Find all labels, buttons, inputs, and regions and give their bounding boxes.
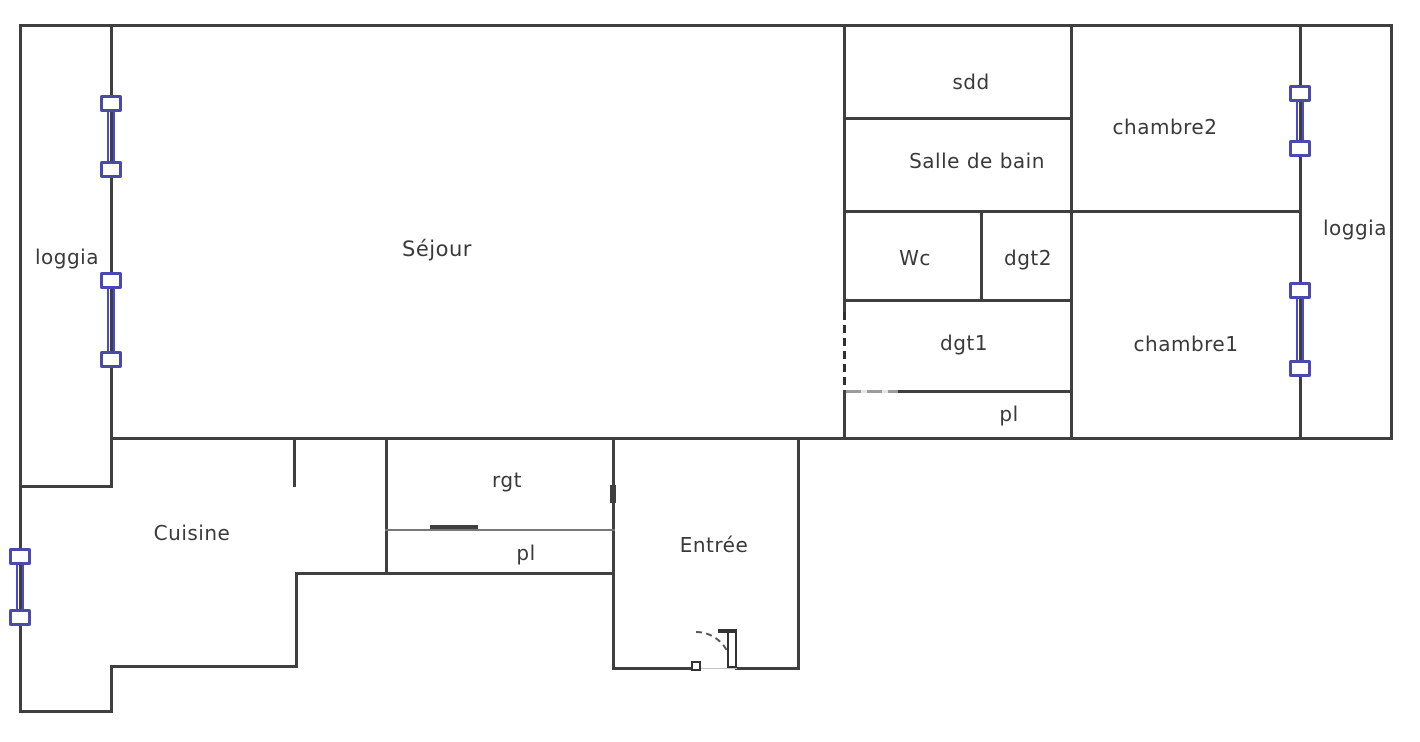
wall [293,437,296,487]
wall [843,390,846,440]
wall [980,210,983,302]
room-label-dgt2: dgt2 [1004,246,1052,270]
window-frame-top [100,272,122,289]
wall [385,529,615,531]
room-label-chambre2: chambre2 [1113,115,1218,139]
wall [1070,24,1073,440]
window-frame-bottom [1289,140,1311,157]
window-glazing [1296,100,1304,142]
wall [385,437,388,575]
room-label-chambre1: chambre1 [1134,332,1239,356]
wall [612,437,615,670]
room-label-sdd: sdd [952,70,989,94]
window-icon [9,548,31,626]
room-label-cuisine: Cuisine [154,521,231,545]
window-frame-top [1289,85,1311,102]
room-label-pl-bottom: pl [516,541,535,565]
wall [110,665,298,668]
wall [295,572,298,668]
window-frame-bottom [9,609,31,626]
wall [695,668,737,669]
window-glazing [16,563,24,611]
window-icon [1289,282,1311,377]
room-label-loggia-left: loggia [35,245,99,269]
wall [110,665,113,713]
window-glazing [107,287,115,353]
wall [735,667,800,670]
entry-door-hinge-icon [691,661,701,671]
wall [1070,210,1302,213]
wall [797,437,800,670]
room-label-entree: Entrée [680,533,749,557]
room-label-dgt1: dgt1 [940,331,988,355]
window-frame-bottom [100,351,122,368]
room-label-sejour: Séjour [402,237,472,261]
room-label-wc: Wc [899,246,931,270]
wall [1390,24,1393,440]
window-frame-top [100,95,122,112]
wall [19,24,1393,27]
wall [843,117,1073,120]
window-glazing [107,110,115,163]
wall [612,667,695,670]
wall [110,24,113,488]
room-label-pl-top: pl [999,402,1018,426]
window-frame-top [1289,282,1311,299]
entry-door-leaf-icon [727,630,737,668]
window-frame-bottom [100,161,122,178]
room-label-rgt: rgt [492,468,522,492]
wall [295,572,615,575]
wall [19,485,113,488]
window-frame-top [9,548,31,565]
wall [846,390,898,393]
wall [843,299,1073,302]
wall [843,24,846,312]
wall [610,485,616,503]
wall [843,210,1073,213]
window-glazing [1296,297,1304,362]
window-icon [1289,85,1311,157]
room-label-loggia-right: loggia [1323,216,1387,240]
window-frame-bottom [1289,360,1311,377]
wall [19,710,113,713]
wall [110,437,1393,440]
floor-plan: loggia Séjour Cuisine rgt pl Entrée sdd … [0,0,1420,742]
wall [843,312,846,390]
entry-door-leaf-cap [718,629,737,633]
wall [430,525,478,529]
window-icon [100,272,122,368]
room-label-salle-de-bain: Salle de bain [909,149,1045,173]
window-icon [100,95,122,178]
